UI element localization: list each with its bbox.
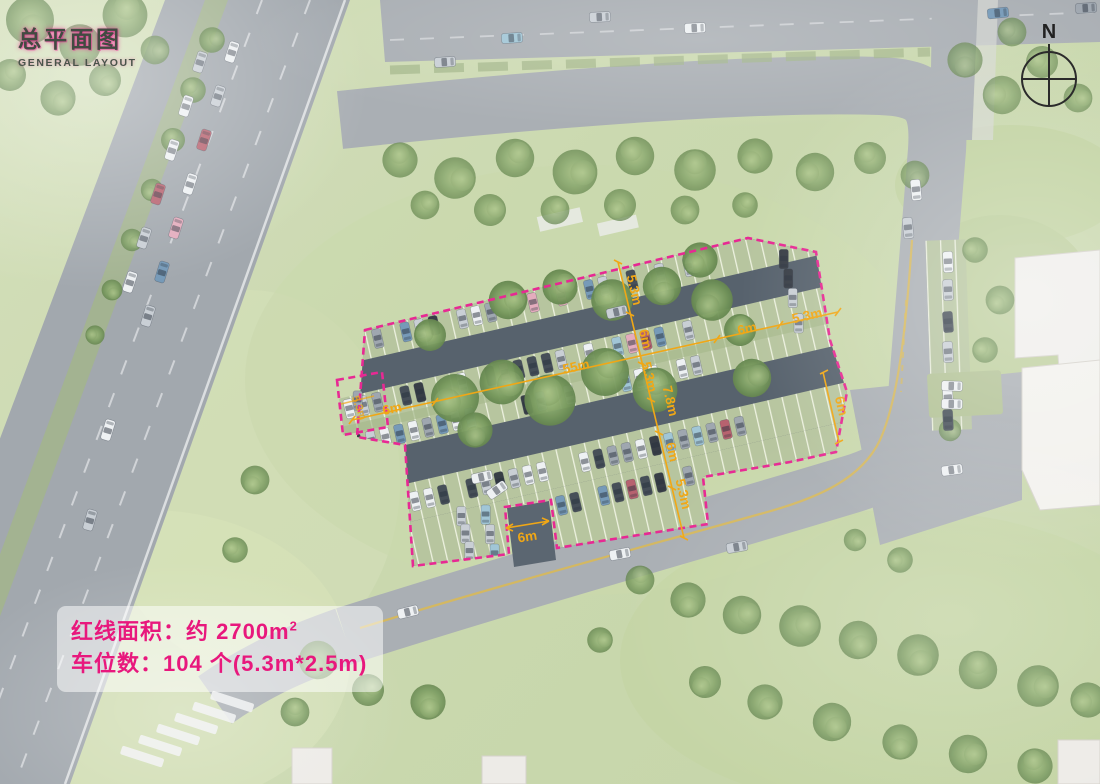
- car: [941, 399, 962, 409]
- car: [942, 279, 953, 300]
- car: [486, 525, 495, 544]
- car: [481, 505, 490, 524]
- title-block: 总平面图 GENERAL LAYOUT: [18, 20, 137, 69]
- car: [942, 251, 953, 272]
- site-plan-rendering: 6m 55m 6m 5.3m 5.3m 6m 5.3m 7.8m 6m 5.3m…: [0, 0, 1100, 784]
- area-text: 红线面积：约 2700m: [71, 619, 290, 644]
- car: [987, 7, 1009, 19]
- page-title: 总平面图: [18, 20, 137, 54]
- tree: [735, 136, 775, 176]
- car: [589, 11, 610, 22]
- car: [457, 507, 466, 526]
- parking-island: [927, 370, 1003, 418]
- building: [292, 748, 332, 784]
- car: [910, 179, 922, 201]
- red-line-area-label: 红线面积：约 2700m2: [71, 616, 367, 648]
- tree: [788, 145, 842, 199]
- tree: [404, 678, 452, 726]
- car: [684, 22, 705, 33]
- car: [941, 381, 962, 392]
- area-superscript: 2: [290, 619, 298, 634]
- car: [788, 288, 797, 307]
- car: [434, 56, 456, 67]
- car: [461, 524, 470, 543]
- tree: [851, 139, 888, 176]
- tree: [1058, 78, 1099, 119]
- page-subtitle: GENERAL LAYOUT: [18, 57, 137, 69]
- car: [501, 32, 523, 43]
- car: [942, 311, 953, 333]
- car: [784, 269, 793, 288]
- tree: [582, 622, 618, 658]
- dim-label: 6m: [516, 528, 538, 546]
- parking-count-label: 车位数：104 个(5.3m*2.5m): [71, 648, 367, 680]
- compass-north-label: N: [1042, 21, 1056, 43]
- annotation-box: 红线面积：约 2700m2 车位数：104 个(5.3m*2.5m): [57, 606, 383, 692]
- tree: [39, 79, 78, 118]
- building: [482, 756, 526, 784]
- car: [942, 409, 953, 430]
- building: [1022, 360, 1100, 510]
- car: [942, 341, 953, 363]
- car: [1075, 2, 1097, 13]
- car: [779, 249, 788, 268]
- car: [902, 217, 914, 239]
- building: [1058, 740, 1100, 784]
